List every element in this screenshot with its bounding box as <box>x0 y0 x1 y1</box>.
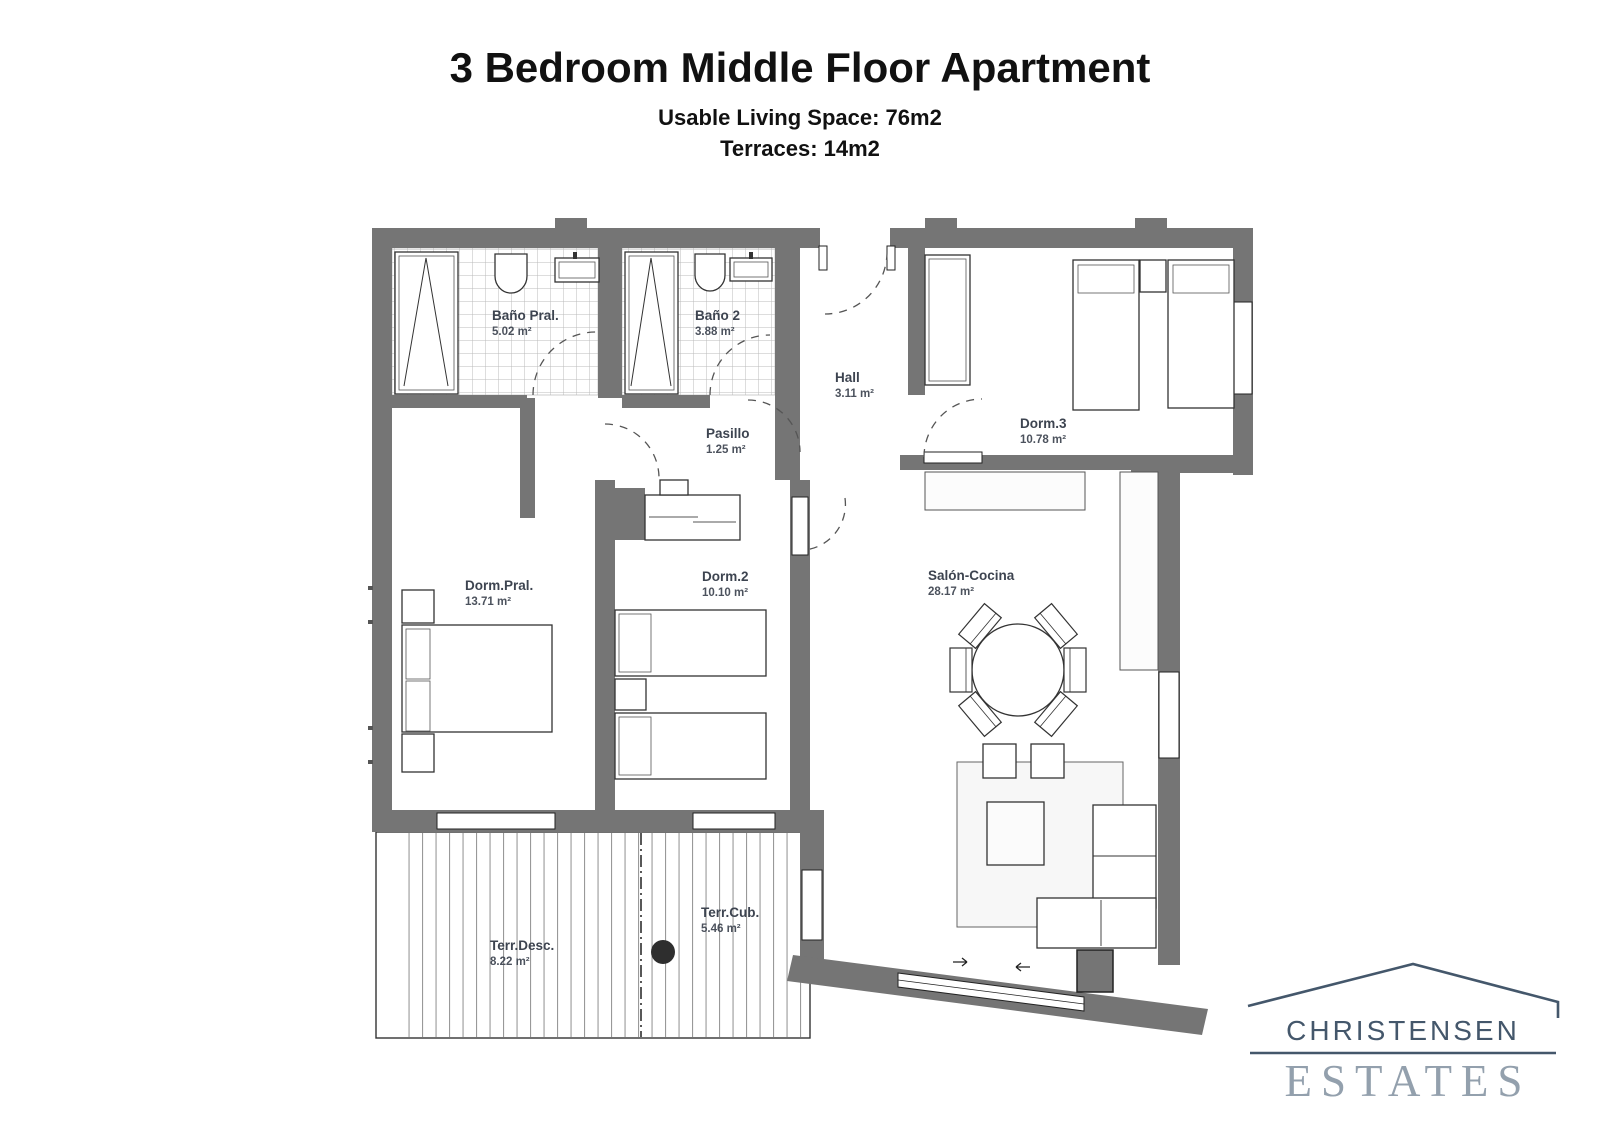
bed-single-2 <box>615 713 766 779</box>
top-wall-bump-right <box>1135 218 1167 230</box>
facade-column <box>1077 950 1113 992</box>
salon-terrace-door <box>802 870 822 940</box>
room-area: 5.46 m² <box>701 923 741 935</box>
dorm3-door-leaf <box>924 452 982 463</box>
nightstand <box>402 590 434 623</box>
roof-icon <box>1248 964 1558 1018</box>
terrace-pillar-icon <box>651 940 675 964</box>
toilet-icon <box>495 254 527 293</box>
entrance-jamb-right <box>887 246 895 270</box>
room-name: Baño 2 <box>695 308 740 323</box>
room-name: Dorm.3 <box>1020 416 1067 431</box>
entrance-jamb-left <box>819 246 827 270</box>
kitchen-counter-right <box>1120 472 1158 670</box>
terrace-area <box>376 832 810 1038</box>
dorm3-window <box>1234 302 1252 394</box>
dining-table-icon <box>972 624 1064 716</box>
bed-single-1 <box>1073 260 1139 410</box>
sink-faucet-icon <box>573 252 577 259</box>
dorm2-window <box>693 813 775 829</box>
bano2-right-wall <box>775 248 800 398</box>
logo-name-bottom: ESTATES <box>1285 1056 1532 1106</box>
sofa-bottom-section <box>1037 898 1156 948</box>
sink2-icon <box>730 258 772 281</box>
bano2-bottom-wall <box>622 395 710 408</box>
room-area: 10.10 m² <box>702 587 748 599</box>
room-name: Hall <box>835 370 860 385</box>
nightstand <box>1140 260 1166 292</box>
room-area: 1.25 m² <box>706 444 746 456</box>
hall-right-wall <box>908 248 925 395</box>
room-area: 8.22 m² <box>490 956 530 968</box>
room-area: 10.78 m² <box>1020 434 1066 446</box>
wardrobe-icon <box>925 255 970 385</box>
dorm-pral-furniture <box>402 590 552 772</box>
nightstand <box>615 679 646 710</box>
dorm3-door-arc <box>924 399 982 457</box>
top-wall-right <box>890 228 1253 248</box>
shower-icon <box>395 252 458 394</box>
closet-vent <box>660 480 688 495</box>
room-name: Dorm.Pral. <box>465 578 533 593</box>
room-name: Pasillo <box>706 426 750 441</box>
nightstand <box>402 734 434 772</box>
room-name: Salón-Cocina <box>928 568 1015 583</box>
salon-furniture <box>925 472 1158 948</box>
room-name: Baño Pral. <box>492 308 559 323</box>
chair <box>950 648 972 692</box>
room-name: Dorm.2 <box>702 569 749 584</box>
room-area: 28.17 m² <box>928 586 974 598</box>
coffee-table <box>987 802 1044 865</box>
top-wall-bump-mid <box>925 218 957 230</box>
toilet2-icon <box>695 254 725 291</box>
dorm2-door-leaf <box>792 497 808 555</box>
floor-plan: Baño Pral. 5.02 m² Baño 2 3.88 m² Hall 3… <box>368 210 1258 1045</box>
dorm-divider-wall <box>595 480 615 810</box>
room-area: 13.71 m² <box>465 596 511 608</box>
terraces-subtitle: Terraces: 14m2 <box>0 133 1600 164</box>
room-name: Terr.Desc. <box>490 938 554 953</box>
sofa-right-section <box>1093 805 1156 908</box>
bed-double <box>402 625 552 732</box>
header: 3 Bedroom Middle Floor Apartment Usable … <box>0 44 1600 164</box>
room-name: Terr.Cub. <box>701 905 759 920</box>
room-area: 5.02 m² <box>492 326 532 338</box>
dorm-pral-door-arc <box>605 424 659 478</box>
salon-window <box>1159 672 1179 758</box>
room-area: 3.88 m² <box>695 326 735 338</box>
dorm2-door-arc <box>805 498 845 550</box>
slide-arrow-right-icon <box>953 958 967 966</box>
armchair <box>1031 744 1064 778</box>
armchair <box>983 744 1016 778</box>
room-area: 3.11 m² <box>835 388 874 400</box>
chair <box>1064 648 1086 692</box>
top-wall-left <box>372 228 820 248</box>
entrance-door-arc <box>825 252 887 314</box>
dorm3-furniture <box>925 255 1234 410</box>
bano-pral-bottom-wall <box>392 395 527 408</box>
sink2-faucet-icon <box>749 252 753 259</box>
terrace-decking <box>404 833 809 1037</box>
dorm-pral-upper-wall <box>520 398 535 518</box>
top-wall-bump-left <box>555 218 587 230</box>
bed-single-2 <box>1168 260 1234 408</box>
slide-arrow-left-icon <box>1016 963 1030 971</box>
bed-single-1 <box>615 610 766 676</box>
left-wall <box>372 228 392 813</box>
closet-icon <box>645 495 740 540</box>
logo-name-top: CHRISTENSEN <box>1286 1015 1520 1046</box>
usable-space-subtitle: Usable Living Space: 76m2 <box>0 102 1600 133</box>
kitchen-counter-top <box>925 472 1085 510</box>
page-title: 3 Bedroom Middle Floor Apartment <box>0 44 1600 92</box>
company-logo: CHRISTENSEN ESTATES <box>1238 956 1568 1111</box>
bathroom-divider-wall <box>598 248 622 398</box>
hall-left-lower-wall <box>775 395 800 480</box>
dorm-pral-window <box>437 813 555 829</box>
